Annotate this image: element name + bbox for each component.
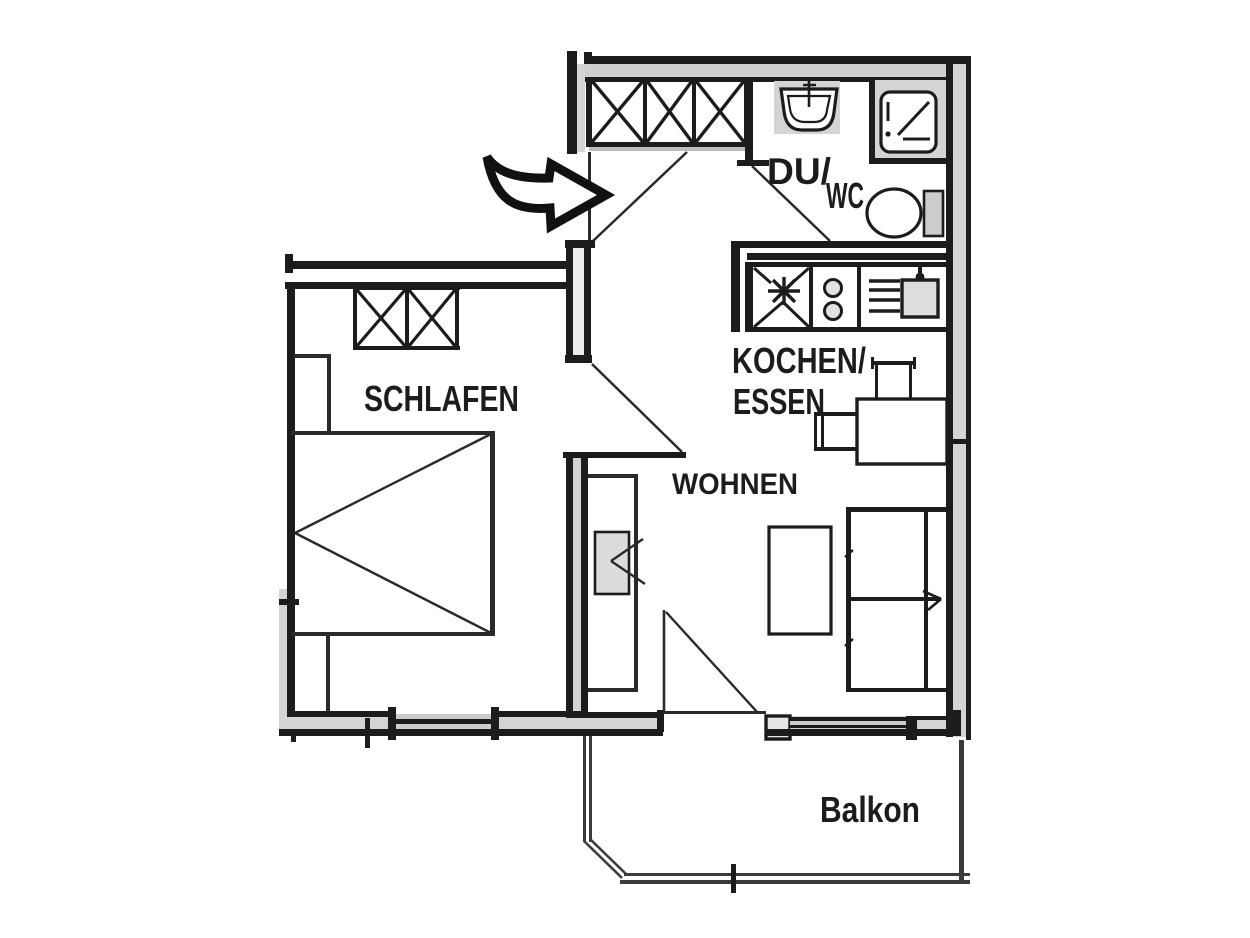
- svg-text:DU/: DU/: [767, 151, 831, 192]
- svg-text:WOHNEN: WOHNEN: [672, 468, 798, 501]
- svg-text:WC: WC: [826, 175, 864, 216]
- svg-text:ESSEN: ESSEN: [733, 381, 825, 422]
- svg-text:SCHLAFEN: SCHLAFEN: [364, 378, 519, 419]
- svg-text:KOCHEN/: KOCHEN/: [732, 340, 866, 381]
- svg-text:Balkon: Balkon: [820, 789, 920, 830]
